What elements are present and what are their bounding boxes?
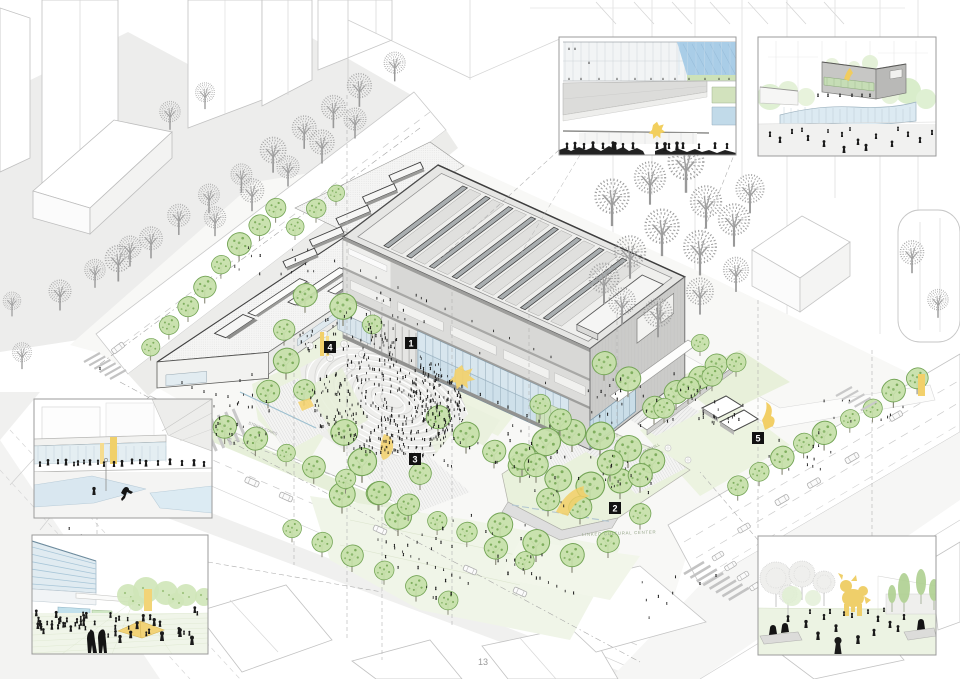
svg-text:2: 2 [612, 504, 617, 514]
svg-text:4: 4 [327, 343, 332, 353]
svg-text:13: 13 [478, 657, 488, 667]
svg-text:3: 3 [412, 455, 417, 465]
svg-text:1: 1 [408, 339, 413, 349]
svg-text:5: 5 [755, 434, 760, 444]
